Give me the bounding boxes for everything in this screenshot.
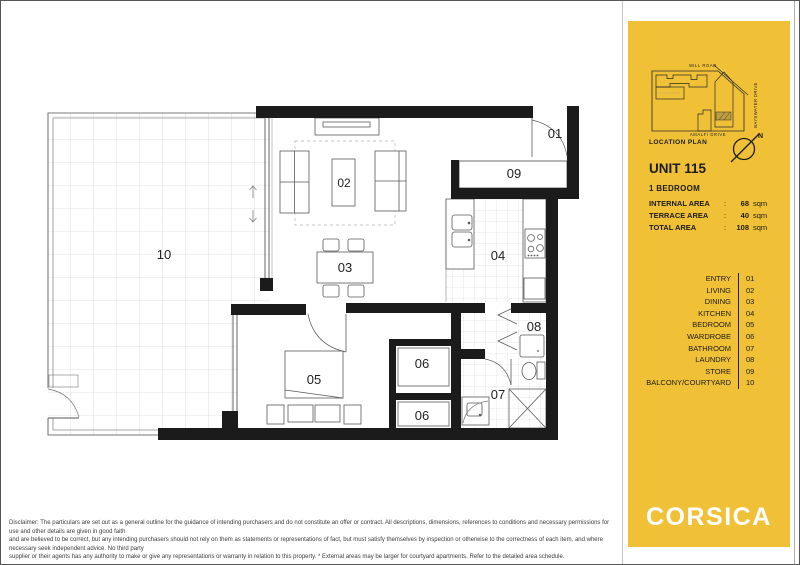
area-label: TERRACE AREA xyxy=(649,210,721,222)
legend-row-living: LIVING 02 xyxy=(642,285,768,297)
room-label-entry: 01 xyxy=(548,126,562,141)
road-label-bottom: AMALFI DRIVE xyxy=(690,132,726,137)
page-fold-line xyxy=(622,1,623,564)
subject-building-highlight xyxy=(716,112,731,120)
room-label-wardrobe-upper: 06 xyxy=(415,356,429,371)
north-arrow-icon: N xyxy=(725,129,765,167)
legend-name: KITCHEN xyxy=(642,308,739,320)
disclaimer: Disclaimer: The particulars are set out … xyxy=(9,519,617,562)
disclaimer-line-3: supplier or their agents has any authori… xyxy=(9,553,617,562)
pillow xyxy=(315,405,340,422)
building-outline xyxy=(656,75,707,87)
bedroom-door xyxy=(308,314,346,352)
legend-code: 07 xyxy=(739,343,754,355)
area-label: INTERNAL AREA xyxy=(649,198,721,210)
legend-code: 09 xyxy=(739,366,754,378)
legend-row-bedroom: BEDROOM 05 xyxy=(642,319,768,331)
area-colon: : xyxy=(721,210,729,222)
legend-row-kitchen: KITCHEN 04 xyxy=(642,308,768,320)
legend-name: BALCONY/COURTYARD xyxy=(642,377,739,389)
legend-name: WARDROBE xyxy=(642,331,739,343)
location-plan-map: MILL ROAD AMALFI DRIVE BAYSWATER DRIVE xyxy=(645,57,765,137)
brochure-page: 01 02 03 04 05 06 06 07 08 09 10 Disclai… xyxy=(0,0,800,565)
room-label-balcony: 10 xyxy=(157,247,171,262)
dining-chair xyxy=(323,239,339,251)
room-label-store: 09 xyxy=(507,166,521,181)
building-outline xyxy=(698,110,711,131)
room-label-dining: 03 xyxy=(338,260,352,275)
legend-name: LIVING xyxy=(642,285,739,297)
legend-row-laundry: LAUNDRY 08 xyxy=(642,354,768,366)
legend-row-entry: ENTRY 01 xyxy=(642,273,768,285)
living-furniture xyxy=(280,118,406,225)
area-row-terrace: TERRACE AREA : 40 sqm xyxy=(649,210,775,222)
legend-code: 03 xyxy=(739,296,754,308)
area-unit: sqm xyxy=(749,198,775,210)
legend-name: LAUNDRY xyxy=(642,354,739,366)
pillow xyxy=(288,405,313,422)
legend-code: 02 xyxy=(739,285,754,297)
sofa-right xyxy=(375,151,406,211)
road-label-top: MILL ROAD xyxy=(689,63,717,68)
bedroom-furniture xyxy=(267,351,361,424)
legend-code: 10 xyxy=(739,377,754,389)
tub-drain xyxy=(537,350,539,352)
dining-chair xyxy=(323,285,339,297)
location-plan-caption: LOCATION PLAN xyxy=(649,139,707,146)
road-label-right: BAYSWATER DRIVE xyxy=(753,82,758,127)
unit-subtitle: 1 BEDROOM xyxy=(649,184,700,193)
room-label-bedroom: 05 xyxy=(307,372,321,387)
legend-code: 04 xyxy=(739,308,754,320)
north-label: N xyxy=(758,133,763,140)
floor-plan: 01 02 03 04 05 06 06 07 08 09 10 xyxy=(1,1,626,565)
terrace-courtyard xyxy=(48,113,269,435)
area-colon: : xyxy=(721,222,729,234)
room-label-bathroom: 07 xyxy=(491,387,505,402)
bedside-table xyxy=(267,405,284,424)
legend-name: STORE xyxy=(642,366,739,378)
tv xyxy=(323,122,370,127)
sofa-left xyxy=(280,151,309,213)
legend-row-bathroom: BATHROOM 07 xyxy=(642,343,768,355)
legend-code: 08 xyxy=(739,354,754,366)
area-value: 68 xyxy=(729,198,749,210)
disclaimer-line-1: Disclaimer: The particulars are set out … xyxy=(9,519,617,536)
room-label-living: 02 xyxy=(337,176,351,190)
disclaimer-line-2: and are believed to be correct, but any … xyxy=(9,536,617,553)
tap xyxy=(468,222,470,224)
legend-code: 05 xyxy=(739,319,754,331)
area-unit: sqm xyxy=(749,210,775,222)
corsica-logo: CORSICA xyxy=(646,503,772,532)
legend-name: BATHROOM xyxy=(642,343,739,355)
legend-name: ENTRY xyxy=(642,273,739,285)
legend-name: DINING xyxy=(642,296,739,308)
legend-row-store: STORE 09 xyxy=(642,366,768,378)
area-value: 40 xyxy=(729,210,749,222)
unit-title: UNIT 115 xyxy=(649,161,706,176)
toilet xyxy=(522,362,545,380)
page-edge-line xyxy=(794,1,795,564)
info-sidebar: MILL ROAD AMALFI DRIVE BAYSWATER DRIVE L… xyxy=(628,21,790,547)
area-label: TOTAL AREA xyxy=(649,222,721,234)
dining-chair xyxy=(348,239,364,251)
laundry-tub xyxy=(520,335,544,357)
legend-row-balcony: BALCONY/COURTYARD 10 xyxy=(642,377,768,389)
area-row-internal: INTERNAL AREA : 68 sqm xyxy=(649,198,775,210)
area-table: INTERNAL AREA : 68 sqm TERRACE AREA : 40… xyxy=(649,198,775,234)
room-legend: ENTRY 01 LIVING 02 DINING 03 KITCHEN 04 … xyxy=(642,273,768,389)
area-row-total: TOTAL AREA : 108 sqm xyxy=(649,222,775,234)
legend-row-wardrobe: WARDROBE 06 xyxy=(642,331,768,343)
legend-row-dining: DINING 03 xyxy=(642,296,768,308)
room-label-laundry: 08 xyxy=(527,319,541,334)
area-value: 108 xyxy=(729,222,749,234)
legend-code: 01 xyxy=(739,273,754,285)
legend-name: BEDROOM xyxy=(642,319,739,331)
oven xyxy=(524,278,545,299)
cooktop xyxy=(525,229,545,258)
legend-code: 06 xyxy=(739,331,754,343)
area-unit: sqm xyxy=(749,222,775,234)
tap xyxy=(468,239,470,241)
room-label-kitchen: 04 xyxy=(491,248,505,263)
area-colon: : xyxy=(721,198,729,210)
dining-chair xyxy=(348,285,364,297)
room-label-wardrobe-lower: 06 xyxy=(415,408,429,423)
bedside-table xyxy=(344,405,361,424)
